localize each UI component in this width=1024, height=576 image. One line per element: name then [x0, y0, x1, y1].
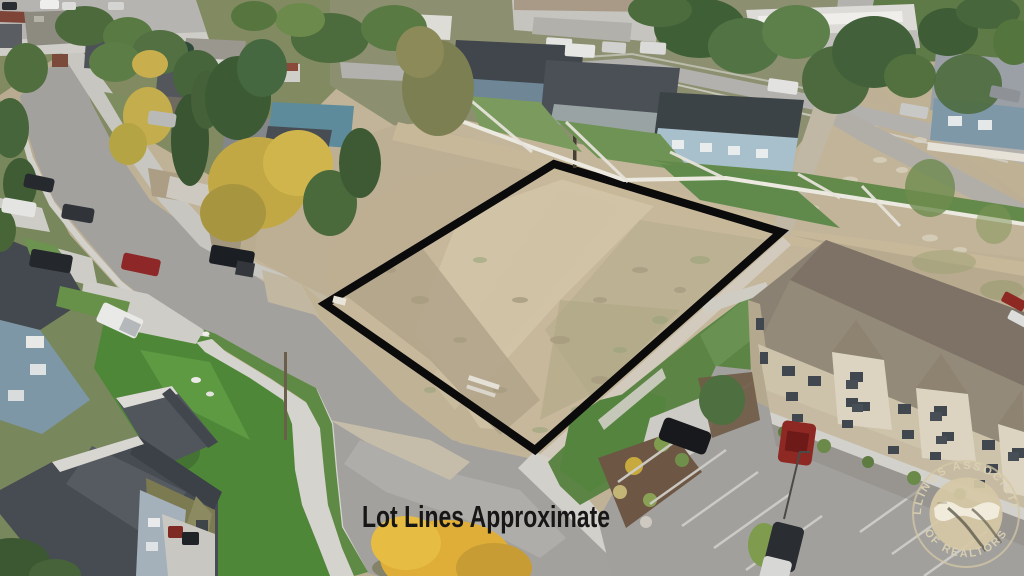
svg-text:Lot Lines Approximate: Lot Lines Approximate: [362, 499, 610, 534]
